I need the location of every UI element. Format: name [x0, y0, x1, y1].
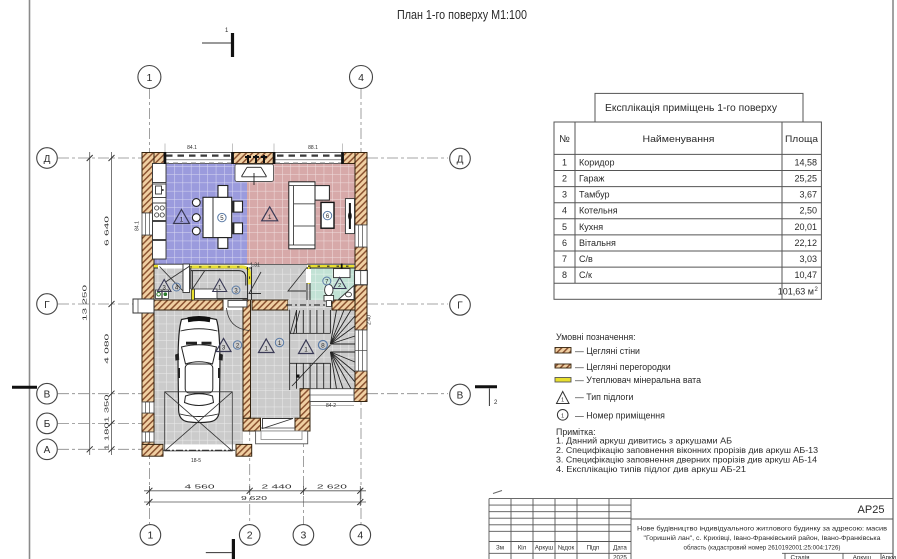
svg-text:Тамбур: Тамбур	[579, 190, 610, 200]
svg-text:Кухня: Кухня	[579, 222, 603, 232]
svg-text:Аркушів: Аркушів	[881, 555, 897, 559]
svg-text:2025: 2025	[613, 555, 627, 559]
svg-text:3,03: 3,03	[799, 254, 817, 264]
svg-text:84.1: 84.1	[135, 221, 141, 231]
svg-text:3: 3	[562, 190, 567, 200]
svg-text:Д: Д	[457, 154, 464, 165]
svg-text:Вітальня: Вітальня	[579, 238, 616, 248]
svg-text:5: 5	[562, 222, 567, 232]
svg-text:область (кадастровий номер 261: область (кадастровий номер 2610192001:25…	[684, 544, 841, 552]
svg-text:3,67: 3,67	[799, 190, 817, 200]
svg-text:Зм: Зм	[496, 545, 504, 552]
svg-text:Котельня: Котельня	[579, 206, 618, 216]
svg-text:1: 1	[561, 414, 564, 420]
svg-text:10,47: 10,47	[794, 270, 817, 280]
svg-text:2,50: 2,50	[799, 206, 817, 216]
svg-text:22,12: 22,12	[794, 238, 817, 248]
svg-text:1 180: 1 180	[104, 422, 110, 450]
svg-text:№док: №док	[558, 545, 575, 552]
svg-text:6: 6	[562, 238, 567, 248]
svg-text:4 080: 4 080	[104, 334, 110, 364]
svg-text:9 620: 9 620	[241, 496, 267, 502]
svg-text:2: 2	[494, 400, 498, 406]
svg-text:4: 4	[357, 530, 363, 542]
svg-text:План 1-го поверху М1:100: План 1-го поверху М1:100	[397, 8, 527, 22]
svg-text:84.1: 84.1	[187, 145, 197, 151]
svg-text:1. Данний аркуш дивитись з арк: 1. Данний аркуш дивитись з аркушами АБ	[556, 436, 733, 446]
svg-text:В: В	[457, 390, 464, 401]
svg-text:84-2: 84-2	[326, 403, 336, 409]
svg-text:3. Специфікацію заповнення две: 3. Специфікацію заповнення дверних прорі…	[556, 455, 817, 465]
svg-text:14,58: 14,58	[794, 157, 817, 167]
svg-text:Площа: Площа	[785, 134, 819, 145]
svg-text:1: 1	[146, 72, 152, 84]
svg-text:1: 1	[268, 214, 272, 221]
svg-text:Дата: Дата	[613, 545, 627, 552]
svg-text:18-5: 18-5	[191, 458, 201, 464]
svg-text:1: 1	[264, 346, 268, 353]
svg-text:2: 2	[562, 174, 567, 184]
svg-text:Г: Г	[44, 300, 50, 311]
svg-text:Д: Д	[44, 154, 51, 165]
svg-text:Підп: Підп	[587, 545, 600, 552]
svg-text:2. Специфікацію заповнення вік: 2. Специфікацію заповнення віконних прор…	[556, 445, 818, 455]
svg-text:8: 8	[562, 270, 567, 280]
svg-text:Г: Г	[457, 301, 463, 312]
svg-text:1: 1	[562, 157, 567, 167]
svg-text:1: 1	[225, 28, 229, 34]
svg-text:Гараж: Гараж	[579, 174, 604, 184]
svg-text:4 560: 4 560	[185, 485, 215, 491]
svg-text:— Тип підлоги: — Тип підлоги	[575, 392, 634, 402]
svg-text:Стадія: Стадія	[790, 555, 809, 559]
svg-text:— Номер приміщення: — Номер приміщення	[575, 411, 665, 421]
svg-text:4: 4	[358, 72, 364, 84]
svg-text:1: 1	[304, 347, 308, 354]
svg-text:25,25: 25,25	[794, 174, 817, 184]
svg-text:С/к: С/к	[579, 270, 592, 280]
svg-text:20,01: 20,01	[794, 222, 817, 232]
svg-text:2: 2	[338, 283, 341, 289]
svg-text:— Цегляні стіни: — Цегляні стіни	[575, 346, 640, 356]
svg-text:Найменування: Найменування	[643, 134, 715, 145]
svg-text:— Утеплювач мінеральна вата: — Утеплювач мінеральна вата	[575, 375, 701, 385]
svg-text:13 250: 13 250	[83, 285, 89, 321]
svg-text:1 350: 1 350	[104, 395, 110, 423]
svg-text:1: 1	[180, 217, 184, 224]
svg-text:Коридор: Коридор	[579, 157, 615, 167]
svg-text:"Горишній лан", с. Крихівці, І: "Горишній лан", с. Крихівці, Івано-Франк…	[644, 534, 881, 542]
svg-text:2.40: 2.40	[367, 315, 373, 325]
svg-text:С/в: С/в	[579, 254, 593, 264]
svg-text:2 620: 2 620	[317, 485, 347, 491]
svg-text:4. Експлікацію типів підлог ди: 4. Експлікацію типів підлог див аркуш АБ…	[556, 464, 746, 474]
svg-text:7: 7	[562, 254, 567, 264]
svg-text:1: 1	[147, 530, 153, 542]
svg-text:Кіл: Кіл	[518, 545, 527, 552]
svg-text:2: 2	[247, 530, 253, 542]
svg-text:1: 1	[561, 398, 564, 404]
svg-text:Експлікація приміщень 1-го пов: Експлікація приміщень 1-го поверху	[605, 102, 778, 114]
svg-text:Аркуш: Аркуш	[853, 555, 871, 559]
svg-text:101,63 м: 101,63 м	[778, 286, 814, 296]
svg-text:3: 3	[222, 345, 226, 352]
svg-text:Умовні позначення:: Умовні позначення:	[556, 332, 636, 342]
svg-text:— Цегляні перегородки: — Цегляні перегородки	[575, 362, 671, 372]
svg-text:2 440: 2 440	[262, 485, 292, 491]
svg-text:АР25: АР25	[858, 504, 885, 516]
svg-text:Нове будівництво індивідуально: Нове будівництво індивідуального житлово…	[637, 525, 888, 533]
svg-text:В: В	[44, 390, 51, 401]
svg-text:А: А	[44, 445, 51, 456]
svg-text:№: №	[559, 134, 570, 145]
svg-text:Аркуш: Аркуш	[535, 545, 553, 552]
svg-text:1.31: 1.31	[250, 263, 260, 269]
svg-text:4: 4	[562, 206, 567, 216]
svg-text:3: 3	[300, 530, 306, 542]
svg-text:Б: Б	[44, 419, 51, 430]
svg-text:6 640: 6 640	[104, 216, 110, 246]
svg-text:88.1: 88.1	[308, 145, 318, 151]
svg-text:8: 8	[321, 343, 325, 350]
